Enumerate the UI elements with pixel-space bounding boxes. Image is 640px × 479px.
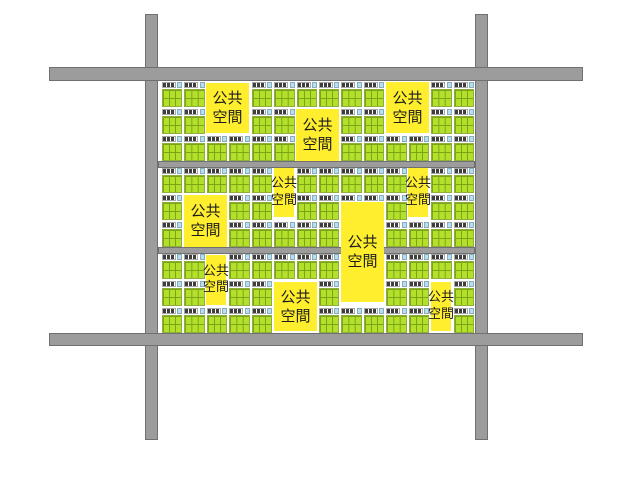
building-module (252, 82, 272, 107)
green-courtyard (386, 315, 406, 333)
green-courtyard (409, 229, 429, 247)
building-row (431, 195, 451, 201)
water-feature-icon (245, 308, 250, 314)
building-icon (297, 82, 311, 88)
building-row (229, 195, 249, 201)
building-icon (252, 195, 266, 201)
building-row (319, 195, 339, 201)
building-module (162, 136, 182, 161)
public-space-text-line: 空間 (405, 193, 431, 209)
water-feature-icon (312, 195, 317, 201)
water-feature-icon (245, 254, 250, 260)
road-internal-lower (158, 247, 475, 254)
green-courtyard (184, 143, 204, 161)
green-courtyard (319, 202, 339, 220)
green-courtyard (386, 229, 406, 247)
building-icon (431, 254, 445, 260)
water-feature-icon (469, 82, 474, 88)
building-row (409, 136, 429, 142)
water-feature-icon (245, 136, 250, 142)
water-feature-icon (200, 168, 205, 174)
building-module (409, 222, 429, 247)
water-feature-icon (200, 254, 205, 260)
water-feature-icon (222, 168, 227, 174)
water-feature-icon (379, 168, 384, 174)
green-courtyard (252, 116, 272, 134)
water-feature-icon (267, 281, 272, 287)
building-module (297, 82, 317, 107)
building-row (409, 308, 429, 314)
building-row (274, 254, 294, 260)
water-feature-icon (312, 82, 317, 88)
building-module (319, 82, 339, 107)
building-module (364, 168, 384, 193)
building-module (364, 82, 384, 107)
green-courtyard (274, 261, 294, 279)
building-icon (409, 281, 423, 287)
building-icon (364, 168, 378, 174)
building-row (162, 82, 182, 88)
building-module (409, 136, 429, 161)
building-icon (386, 281, 400, 287)
green-courtyard (184, 89, 204, 107)
green-courtyard (184, 288, 204, 306)
public-space-label: 公共空間 (341, 202, 384, 302)
building-row (431, 168, 451, 174)
building-icon (341, 308, 355, 314)
building-icon (431, 82, 445, 88)
building-icon (162, 82, 176, 88)
building-module (274, 222, 294, 247)
building-icon (184, 281, 198, 287)
building-module (184, 109, 204, 134)
building-icon (341, 136, 355, 142)
building-module (297, 195, 317, 220)
building-module (319, 222, 339, 247)
public-space-label: 公共空間 (296, 109, 339, 161)
building-row (431, 222, 451, 228)
water-feature-icon (469, 195, 474, 201)
building-row (162, 195, 182, 201)
building-row (207, 136, 227, 142)
water-feature-icon (267, 136, 272, 142)
building-icon (229, 222, 243, 228)
building-icon (364, 109, 378, 115)
building-icon (409, 136, 423, 142)
water-feature-icon (222, 308, 227, 314)
building-row (252, 254, 272, 260)
green-courtyard (341, 116, 361, 134)
green-courtyard (229, 175, 249, 193)
building-icon (319, 222, 333, 228)
water-feature-icon (447, 136, 452, 142)
water-feature-icon (379, 136, 384, 142)
building-module (319, 281, 339, 306)
building-icon (319, 308, 333, 314)
building-module (184, 168, 204, 193)
water-feature-icon (469, 281, 474, 287)
building-row (386, 195, 406, 201)
water-feature-icon (177, 308, 182, 314)
building-icon (252, 109, 266, 115)
building-icon (409, 222, 423, 228)
building-module (364, 109, 384, 134)
green-courtyard (162, 116, 182, 134)
building-row (364, 195, 384, 201)
building-row (162, 136, 182, 142)
green-courtyard (454, 175, 474, 193)
water-feature-icon (177, 136, 182, 142)
building-row (364, 109, 384, 115)
road-internal-upper (158, 161, 475, 168)
building-module (162, 254, 182, 279)
building-row (297, 195, 317, 201)
building-row (274, 82, 294, 88)
water-feature-icon (334, 222, 339, 228)
building-module (454, 168, 474, 193)
building-row (274, 222, 294, 228)
water-feature-icon (267, 222, 272, 228)
building-row (319, 254, 339, 260)
building-icon (184, 168, 198, 174)
green-courtyard (229, 288, 249, 306)
green-courtyard (454, 143, 474, 161)
building-row (364, 168, 384, 174)
building-row (386, 222, 406, 228)
building-icon (454, 281, 468, 287)
water-feature-icon (424, 222, 429, 228)
green-courtyard (341, 175, 361, 193)
building-module (229, 254, 249, 279)
building-icon (252, 281, 266, 287)
city-blocks-area: 公共空間公共空間公共空間公共空間公共空間公共空間公共空間公共空間公共空間公共空間 (162, 82, 474, 333)
building-row (431, 109, 451, 115)
building-row (454, 109, 474, 115)
building-module (252, 222, 272, 247)
building-module (386, 195, 406, 220)
green-courtyard (319, 229, 339, 247)
water-feature-icon (334, 168, 339, 174)
building-module (319, 195, 339, 220)
water-feature-icon (312, 254, 317, 260)
building-icon (386, 254, 400, 260)
building-module (454, 109, 474, 134)
building-row (454, 82, 474, 88)
green-courtyard (431, 202, 451, 220)
building-module (162, 168, 182, 193)
building-icon (454, 195, 468, 201)
green-courtyard (229, 202, 249, 220)
building-row (319, 168, 339, 174)
water-feature-icon (402, 281, 407, 287)
public-space-text-line: 公共 (280, 288, 310, 307)
building-icon (207, 136, 221, 142)
building-row (252, 195, 272, 201)
green-courtyard (229, 143, 249, 161)
building-module (162, 222, 182, 247)
building-module (431, 168, 451, 193)
water-feature-icon (222, 136, 227, 142)
water-feature-icon (290, 222, 295, 228)
building-row (454, 195, 474, 201)
public-space-text-line: 空間 (190, 221, 220, 240)
water-feature-icon (267, 82, 272, 88)
building-icon (184, 308, 198, 314)
water-feature-icon (177, 82, 182, 88)
water-feature-icon (290, 109, 295, 115)
building-icon (431, 136, 445, 142)
building-row (229, 254, 249, 260)
building-icon (319, 254, 333, 260)
public-space-text-line: 空間 (347, 252, 377, 271)
building-row (341, 168, 361, 174)
building-module (229, 222, 249, 247)
building-module (341, 82, 361, 107)
green-courtyard (454, 116, 474, 134)
building-row (207, 308, 227, 314)
building-row (162, 222, 182, 228)
building-module (207, 308, 227, 333)
public-space-text-line: 空間 (212, 108, 242, 127)
building-icon (386, 195, 400, 201)
water-feature-icon (447, 109, 452, 115)
building-row (386, 136, 406, 142)
green-courtyard (364, 89, 384, 107)
green-courtyard (364, 143, 384, 161)
water-feature-icon (290, 136, 295, 142)
water-feature-icon (357, 308, 362, 314)
green-courtyard (162, 143, 182, 161)
building-row (454, 254, 474, 260)
water-feature-icon (200, 82, 205, 88)
water-feature-icon (177, 109, 182, 115)
green-courtyard (252, 315, 272, 333)
building-row (409, 254, 429, 260)
building-module (274, 254, 294, 279)
building-icon (431, 168, 445, 174)
building-row (274, 136, 294, 142)
public-space-text-line: 公共 (392, 89, 422, 108)
green-courtyard (454, 288, 474, 306)
building-icon (184, 109, 198, 115)
public-space-label: 公共空間 (184, 195, 227, 247)
public-space-text-line: 空間 (203, 280, 229, 296)
green-courtyard (162, 288, 182, 306)
green-courtyard (252, 89, 272, 107)
building-icon (229, 195, 243, 201)
building-icon (431, 222, 445, 228)
water-feature-icon (357, 136, 362, 142)
building-icon (341, 82, 355, 88)
building-row (229, 308, 249, 314)
building-icon (274, 82, 288, 88)
building-icon (297, 168, 311, 174)
building-module (454, 281, 474, 306)
water-feature-icon (245, 195, 250, 201)
water-feature-icon (402, 222, 407, 228)
green-courtyard (409, 315, 429, 333)
building-icon (454, 136, 468, 142)
building-module (364, 136, 384, 161)
building-icon (162, 136, 176, 142)
building-icon (341, 195, 355, 201)
green-courtyard (409, 143, 429, 161)
building-row (162, 168, 182, 174)
green-courtyard (364, 116, 384, 134)
green-courtyard (297, 175, 317, 193)
building-icon (297, 195, 311, 201)
building-module (229, 168, 249, 193)
building-row (431, 136, 451, 142)
green-courtyard (297, 261, 317, 279)
green-courtyard (162, 89, 182, 107)
building-row (162, 281, 182, 287)
green-courtyard (409, 261, 429, 279)
building-module (319, 168, 339, 193)
building-module (409, 281, 429, 306)
green-courtyard (431, 89, 451, 107)
building-module (386, 168, 406, 193)
public-space-text-line: 公共 (190, 202, 220, 221)
building-module (297, 168, 317, 193)
building-row (386, 254, 406, 260)
building-module (162, 109, 182, 134)
building-icon (341, 168, 355, 174)
building-icon (274, 222, 288, 228)
building-icon (274, 136, 288, 142)
public-space-text-line: 空間 (280, 307, 310, 326)
building-module (184, 254, 204, 279)
building-module (252, 254, 272, 279)
water-feature-icon (334, 281, 339, 287)
building-icon (207, 308, 221, 314)
water-feature-icon (334, 195, 339, 201)
public-space-label: 公共空間 (206, 83, 249, 133)
building-row (454, 136, 474, 142)
building-icon (297, 254, 311, 260)
green-courtyard (341, 143, 361, 161)
public-space-text-line: 空間 (271, 193, 297, 209)
water-feature-icon (267, 254, 272, 260)
water-feature-icon (177, 195, 182, 201)
water-feature-icon (200, 109, 205, 115)
green-courtyard (454, 202, 474, 220)
building-icon (184, 82, 198, 88)
building-icon (409, 308, 423, 314)
building-module (252, 136, 272, 161)
building-row (409, 281, 429, 287)
building-icon (319, 168, 333, 174)
building-row (386, 308, 406, 314)
green-courtyard (364, 315, 384, 333)
building-row (184, 254, 204, 260)
water-feature-icon (424, 281, 429, 287)
green-courtyard (252, 175, 272, 193)
water-feature-icon (447, 195, 452, 201)
building-module (274, 82, 294, 107)
water-feature-icon (379, 109, 384, 115)
building-module (184, 308, 204, 333)
building-row (386, 281, 406, 287)
building-module (229, 136, 249, 161)
public-space-text-line: 公共 (405, 176, 431, 192)
building-module (431, 254, 451, 279)
building-row (341, 82, 361, 88)
building-icon (319, 281, 333, 287)
water-feature-icon (402, 168, 407, 174)
green-courtyard (454, 261, 474, 279)
public-space-label: 公共空間 (274, 282, 317, 331)
green-courtyard (184, 175, 204, 193)
building-icon (229, 281, 243, 287)
building-icon (454, 82, 468, 88)
building-row (207, 168, 227, 174)
building-row (364, 82, 384, 88)
public-space-text-line: 公共 (271, 176, 297, 192)
building-icon (454, 308, 468, 314)
building-row (229, 222, 249, 228)
green-courtyard (229, 229, 249, 247)
water-feature-icon (312, 168, 317, 174)
building-row (184, 109, 204, 115)
water-feature-icon (245, 281, 250, 287)
building-icon (162, 168, 176, 174)
public-space-label: 公共空間 (431, 282, 451, 331)
water-feature-icon (469, 168, 474, 174)
building-module (454, 82, 474, 107)
water-feature-icon (402, 136, 407, 142)
green-courtyard (184, 315, 204, 333)
building-icon (162, 254, 176, 260)
building-module (341, 109, 361, 134)
green-courtyard (229, 315, 249, 333)
green-courtyard (252, 261, 272, 279)
building-icon (454, 222, 468, 228)
building-icon (162, 195, 176, 201)
public-space-text-line: 公共 (302, 116, 332, 135)
building-module (252, 109, 272, 134)
building-module (364, 308, 384, 333)
building-row (454, 281, 474, 287)
building-icon (274, 109, 288, 115)
building-row (297, 82, 317, 88)
building-icon (409, 254, 423, 260)
building-row (229, 281, 249, 287)
water-feature-icon (447, 168, 452, 174)
building-module (274, 109, 294, 134)
building-row (341, 109, 361, 115)
water-feature-icon (379, 195, 384, 201)
building-row (297, 168, 317, 174)
water-feature-icon (402, 254, 407, 260)
building-icon (364, 136, 378, 142)
road-horizontal-bottom (49, 333, 583, 346)
water-feature-icon (334, 82, 339, 88)
building-icon (184, 136, 198, 142)
building-module (252, 308, 272, 333)
building-module (454, 136, 474, 161)
building-module (431, 136, 451, 161)
building-row (341, 195, 361, 201)
green-courtyard (386, 202, 406, 220)
building-icon (431, 109, 445, 115)
building-icon (454, 109, 468, 115)
building-row (319, 222, 339, 228)
building-row (184, 136, 204, 142)
building-row (319, 308, 339, 314)
building-icon (252, 254, 266, 260)
building-row (252, 168, 272, 174)
